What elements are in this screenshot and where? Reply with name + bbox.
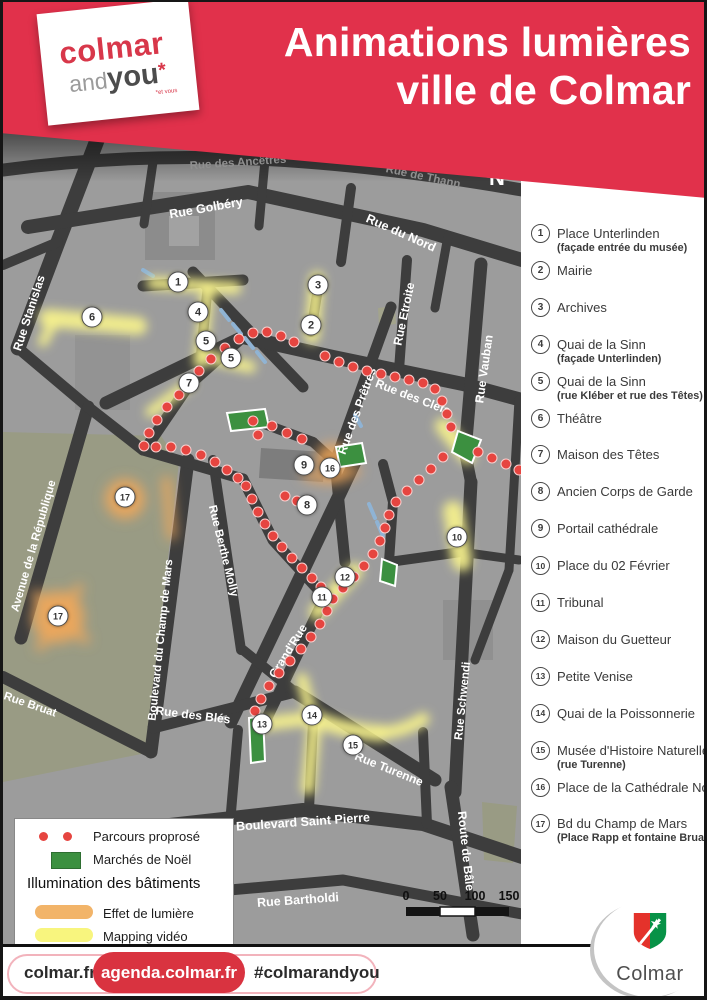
route-dot <box>276 331 287 342</box>
route-dot <box>402 486 413 497</box>
sidebar-item-15: 15Musée d'Histoire Naturelle(rue Turenne… <box>531 741 702 777</box>
route-dot <box>473 447 484 458</box>
title-line-1: Animations lumières <box>284 18 691 66</box>
item-label: Quai de la Poissonnerie <box>557 706 695 721</box>
route-dot <box>362 366 373 377</box>
map-marker-9: 9 <box>294 455 315 476</box>
route-dot <box>152 415 163 426</box>
route-dot <box>260 519 271 530</box>
route-dot <box>274 668 285 679</box>
route-dot <box>247 494 258 505</box>
legend-mapping-label: Mapping vidéo <box>103 929 188 944</box>
route-dot <box>368 549 379 560</box>
item-sublabel: (rue Turenne) <box>557 759 626 771</box>
route-dot <box>320 351 331 362</box>
item-number-badge: 9 <box>531 519 550 538</box>
map-marker-12: 12 <box>335 567 356 588</box>
map-marker-2: 2 <box>301 315 322 336</box>
route-dot <box>285 656 296 667</box>
item-label: Place Unterlinden <box>557 226 660 241</box>
sidebar-item-12: 12Maison du Guetteur <box>531 630 702 666</box>
route-dot <box>334 357 345 368</box>
route-dot <box>162 402 173 413</box>
route-dot <box>139 441 150 452</box>
route-dot <box>289 337 300 348</box>
route-dot <box>384 510 395 521</box>
route-dot <box>380 523 391 534</box>
legend-light-label: Effet de lumière <box>103 906 194 921</box>
item-number-badge: 7 <box>531 445 550 464</box>
poster-border-top <box>0 0 707 2</box>
route-dot <box>248 416 259 427</box>
sidebar-item-7: 7Maison des Têtes <box>531 445 702 481</box>
item-label: Maison des Têtes <box>557 447 659 462</box>
map-marker-4: 4 <box>188 302 209 323</box>
map-marker-1: 1 <box>168 272 189 293</box>
route-dot <box>222 465 233 476</box>
item-label: Maison du Guetteur <box>557 632 671 647</box>
item-number-badge: 2 <box>531 261 550 280</box>
route-dot <box>418 378 429 389</box>
item-sublabel: (rue Kléber et rue des Têtes) <box>557 390 703 402</box>
route-dot <box>391 497 402 508</box>
route-dot-icon <box>63 832 72 841</box>
route-dot <box>306 632 317 643</box>
sidebar-item-16: 16Place de la Cathédrale Nord <box>531 778 702 814</box>
sidebar-item-8: 8Ancien Corps de Garde <box>531 482 702 518</box>
sidebar-item-5: 5Quai de la Sinn(rue Kléber et rue des T… <box>531 372 702 408</box>
sidebar-item-11: 11Tribunal <box>531 593 702 629</box>
item-label: Bd du Champ de Mars <box>557 816 687 831</box>
poster: N Rue des AncêtresRue de ThannRue Golbér… <box>0 0 707 1000</box>
item-sublabel: (façade entrée du musée) <box>557 242 687 254</box>
route-dot <box>151 442 162 453</box>
route-dot <box>487 453 498 464</box>
map-marker-10: 10 <box>447 527 468 548</box>
item-sublabel: (Place Rapp et fontaine Bruat) <box>557 832 707 844</box>
route-dot <box>438 452 449 463</box>
sidebar-item-1: 1Place Unterlinden(façade entrée du musé… <box>531 224 702 260</box>
video-mapping-swatch-icon <box>35 928 93 942</box>
light-effect-swatch-icon <box>35 905 93 919</box>
sidebar-item-14: 14Quai de la Poissonnerie <box>531 704 702 740</box>
scale-label: 50 <box>433 889 447 903</box>
item-number-badge: 6 <box>531 409 550 428</box>
route-dot <box>307 573 318 584</box>
item-label: Musée d'Histoire Naturelle <box>557 743 707 758</box>
logo-tagline: *et vous <box>155 88 177 96</box>
colmar-wordmark: Colmar <box>594 963 706 986</box>
route-dot <box>268 531 279 542</box>
route-dot <box>297 434 308 445</box>
item-label: Archives <box>557 300 607 315</box>
route-dot <box>446 422 457 433</box>
item-number-badge: 4 <box>531 335 550 354</box>
map-marker-17: 17 <box>48 606 69 627</box>
route-dot <box>315 619 326 630</box>
route-dot <box>426 464 437 475</box>
sidebar-item-4: 4Quai de la Sinn(façade Unterlinden) <box>531 335 702 371</box>
sidebar-item-10: 10Place du 02 Février <box>531 556 702 592</box>
map-key-box: Parcours proprosé Marchés de Noël Illumi… <box>14 818 234 946</box>
colmar-city-logo: ★ Colmar <box>594 900 706 997</box>
item-label: Théâtre <box>557 411 602 426</box>
map-marker-14: 14 <box>302 705 323 726</box>
item-sublabel: (façade Unterlinden) <box>557 353 661 365</box>
map-marker-13: 13 <box>252 714 273 735</box>
market-swatch-icon <box>51 852 81 869</box>
route-dot <box>501 459 512 470</box>
legend-route-label: Parcours proprosé <box>93 829 200 844</box>
item-label: Place du 02 Février <box>557 558 670 573</box>
item-number-badge: 5 <box>531 372 550 391</box>
item-number-badge: 10 <box>531 556 550 575</box>
sidebar-item-3: 3Archives <box>531 298 702 334</box>
item-number-badge: 3 <box>531 298 550 317</box>
route-dot <box>253 430 264 441</box>
map-marker-6: 6 <box>82 307 103 328</box>
route-dot <box>359 561 370 572</box>
map-marker-17: 17 <box>115 487 136 508</box>
item-label: Petite Venise <box>557 669 633 684</box>
route-dot <box>376 369 387 380</box>
route-dot <box>414 475 425 486</box>
item-number-badge: 12 <box>531 630 550 649</box>
item-number-badge: 13 <box>531 667 550 686</box>
scale-label: 0 <box>403 889 410 903</box>
route-dot <box>404 375 415 386</box>
item-number-badge: 16 <box>531 778 550 797</box>
map-marker-5: 5 <box>221 348 242 369</box>
logo-and-text: and <box>68 67 109 97</box>
map-marker-8: 8 <box>297 495 318 516</box>
route-dot <box>282 428 293 439</box>
colmar-fr-link[interactable]: colmar.fr <box>24 954 96 992</box>
item-number-badge: 11 <box>531 593 550 612</box>
item-label: Tribunal <box>557 595 603 610</box>
scale-label: 150 <box>499 889 520 903</box>
route-dot <box>442 409 453 420</box>
agenda-colmar-fr-link[interactable]: agenda.colmar.fr <box>93 952 245 993</box>
route-dot <box>196 450 207 461</box>
route-dot <box>181 445 192 456</box>
hashtag-link[interactable]: #colmarandyou <box>254 954 380 992</box>
route-dot <box>256 694 267 705</box>
sidebar-item-13: 13Petite Venise <box>531 667 702 703</box>
map-marker-11: 11 <box>312 587 333 608</box>
item-label: Portail cathédrale <box>557 521 658 536</box>
route-dot <box>267 421 278 432</box>
route-dot <box>241 481 252 492</box>
route-dot <box>430 384 441 395</box>
route-dot <box>264 681 275 692</box>
route-dot <box>253 507 264 518</box>
map-marker-3: 3 <box>308 275 329 296</box>
sidebar-item-17: 17Bd du Champ de Mars(Place Rapp et font… <box>531 814 702 850</box>
page-title: Animations lumières ville de Colmar <box>284 18 691 115</box>
map-marker-15: 15 <box>343 735 364 756</box>
route-dot <box>206 354 217 365</box>
colmar-shield-icon: ★ <box>632 909 668 953</box>
colmar-and-you-logo: colmar andyou* *et vous <box>37 0 200 126</box>
sidebar-item-6: 6Théâtre <box>531 409 702 445</box>
poster-border-bottom <box>0 996 707 1000</box>
item-number-badge: 14 <box>531 704 550 723</box>
map-marker-5: 5 <box>196 331 217 352</box>
legend-illumination-title: Illumination des bâtiments <box>27 875 200 892</box>
route-dot <box>144 428 155 439</box>
route-dot <box>390 372 401 383</box>
map-marker-16: 16 <box>320 458 341 479</box>
route-dot <box>166 442 177 453</box>
route-dot-icon <box>39 832 48 841</box>
route-dot <box>262 327 273 338</box>
legend-market-label: Marchés de Noël <box>93 852 191 867</box>
route-dot <box>296 644 307 655</box>
item-number-badge: 17 <box>531 814 550 833</box>
route-dot <box>297 563 308 574</box>
poster-border-left <box>0 0 3 1000</box>
item-label: Quai de la Sinn <box>557 337 646 352</box>
item-number-badge: 8 <box>531 482 550 501</box>
item-label: Quai de la Sinn <box>557 374 646 389</box>
item-label: Ancien Corps de Garde <box>557 484 693 499</box>
logo-you-text: you <box>106 58 161 95</box>
scale-label: 100 <box>465 889 486 903</box>
title-line-2: ville de Colmar <box>284 66 691 114</box>
sidebar-item-9: 9Portail cathédrale <box>531 519 702 555</box>
item-label: Mairie <box>557 263 592 278</box>
route-dot <box>277 542 288 553</box>
route-dot <box>348 362 359 373</box>
route-dot <box>437 396 448 407</box>
route-dot <box>375 536 386 547</box>
route-dot <box>210 457 221 468</box>
route-dot <box>287 553 298 564</box>
item-number-badge: 1 <box>531 224 550 243</box>
route-dot <box>234 334 245 345</box>
route-dot <box>280 491 291 502</box>
route-dot <box>248 328 259 339</box>
map-marker-7: 7 <box>179 373 200 394</box>
sidebar-item-2: 2Mairie <box>531 261 702 297</box>
logo-asterisk: * <box>157 59 167 82</box>
item-number-badge: 15 <box>531 741 550 760</box>
item-label: Place de la Cathédrale Nord <box>557 780 707 795</box>
